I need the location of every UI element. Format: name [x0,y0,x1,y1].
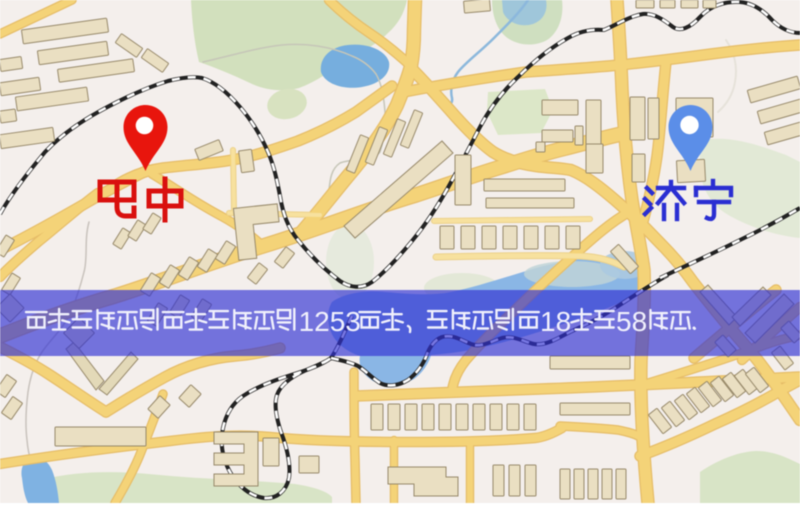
svg-text:18: 18 [540,306,571,337]
svg-text:58: 58 [616,306,647,337]
svg-text:1253: 1253 [299,306,361,337]
